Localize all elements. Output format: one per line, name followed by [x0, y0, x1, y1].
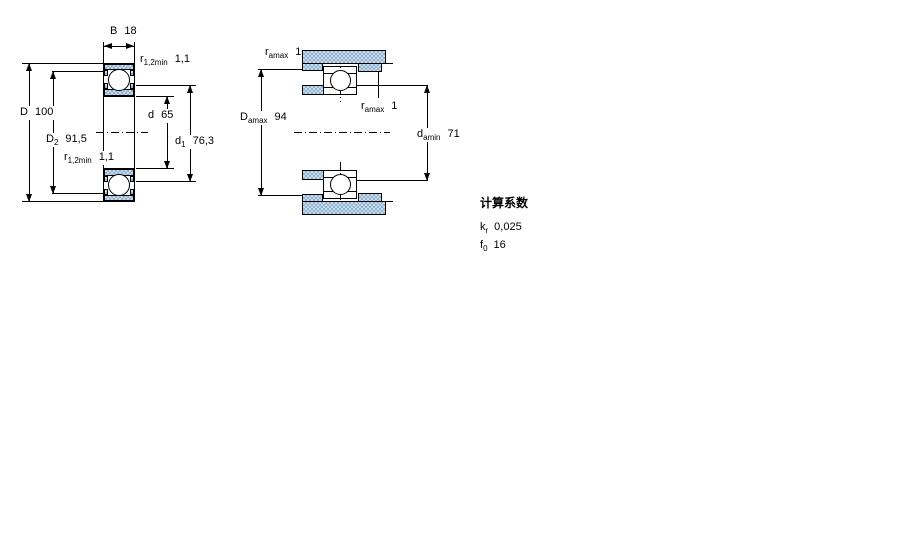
dim-label-damin: damin71	[416, 128, 461, 142]
dim-label-r12min-bottom: r1,2min1,1	[63, 151, 115, 165]
dim-label-d: d65	[147, 109, 174, 123]
fig1-b-arrow-left	[104, 43, 112, 49]
dim-label-D2: D291,5	[45, 133, 88, 147]
fig1-d1-arrow-down	[187, 174, 193, 182]
fig1-d2-arrow-up	[50, 71, 56, 79]
fig1-bore-arrow-up	[164, 96, 170, 104]
fig2-da-arrow-up	[258, 69, 264, 77]
factor-f0: f016	[480, 239, 528, 253]
fig2-shaft-shoulder-bottom-left	[302, 170, 324, 180]
dim-label-damax: Damax94	[239, 111, 288, 125]
fig1-d1-arrow-up	[187, 85, 193, 93]
fig2-housing-bottom	[302, 201, 386, 215]
fig2-damin-arrow-up	[424, 85, 430, 93]
dim-label-D: D100	[19, 106, 54, 120]
fig1-inner-ring-shoulder-left-b	[104, 176, 108, 182]
fig1-ball-bottom	[108, 174, 130, 196]
calculation-factors-block: 计算系数 kr0,025 f016	[480, 194, 528, 253]
fig2-damin-extension-top	[357, 85, 427, 86]
fig1-bore-dimension-line	[167, 96, 168, 169]
fig2-ball-top	[330, 70, 351, 91]
fig1-centerline	[96, 132, 148, 133]
fig2-shaft-shoulder-top-left	[302, 85, 324, 95]
fig1-b-arrow-right	[126, 43, 134, 49]
fig1-inner-ring-shoulder-right	[130, 83, 134, 89]
fig2-damin-arrow-down	[424, 173, 430, 181]
fig1-d2-extension-bottom	[52, 193, 103, 194]
fig1-d-arrow-down	[26, 194, 32, 202]
fig2-centerline	[294, 132, 390, 133]
fig1-ball-top	[108, 69, 130, 91]
calculation-factors-title: 计算系数	[480, 194, 528, 211]
fig2-ball-bottom	[330, 174, 351, 195]
dim-label-B: B18	[109, 25, 138, 39]
fig2-housing-top	[302, 50, 386, 64]
fig2-da-extension-top	[258, 69, 302, 70]
fig2-da-arrow-down	[258, 188, 264, 196]
fig1-d1-dimension-line	[190, 85, 191, 182]
fig2-da-extension-bottom	[258, 195, 302, 196]
fig1-d-arrow-up	[26, 63, 32, 71]
fig1-d-extension-top	[22, 63, 103, 64]
fig1-bore-arrow-down	[164, 161, 170, 169]
dim-label-ramax-top: ramax1	[264, 46, 302, 60]
fig2-housing-shoulder-top-right	[358, 63, 382, 72]
fig2-da-dimension-line	[261, 69, 262, 196]
fig1-inner-ring-shoulder-right-b	[130, 176, 134, 182]
fig1-outer-ring-shoulder-left	[104, 70, 108, 76]
fig2-housing-shoulder-top-left	[302, 63, 323, 71]
dim-label-r12min-top: r1,2min1,1	[139, 53, 191, 67]
fig1-b-extension-right	[134, 42, 135, 64]
factor-kr: kr0,025	[480, 221, 528, 235]
bearing-drawing-canvas: B18 r1,2min1,1 D100 D291,5 d65 d176,3 r1…	[0, 0, 900, 560]
fig1-d-extension-bottom	[22, 201, 103, 202]
dim-label-ramax-side: ramax1	[360, 100, 398, 114]
fig1-d2-extension-top	[52, 71, 103, 72]
fig1-outer-ring-shoulder-left-b	[104, 189, 108, 195]
fig1-outer-ring-shoulder-right	[130, 70, 134, 76]
fig1-d-dimension-line	[29, 63, 30, 202]
fig1-inner-ring-shoulder-left	[104, 83, 108, 89]
fig1-outer-ring-shoulder-right-b	[130, 189, 134, 195]
dim-label-d1: d176,3	[174, 135, 215, 149]
fig1-d2-arrow-down	[50, 186, 56, 194]
fig2-damin-extension-bottom	[357, 180, 427, 181]
